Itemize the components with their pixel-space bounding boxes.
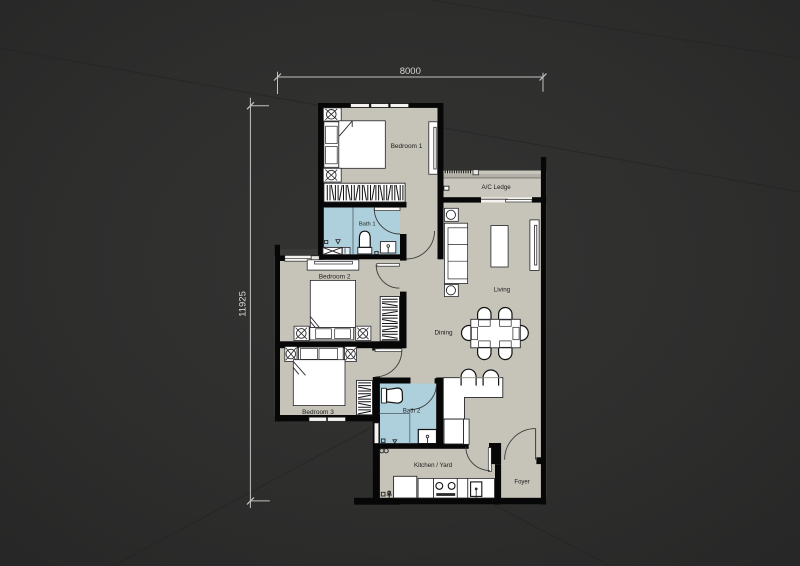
svg-text:Living: Living: [494, 287, 511, 294]
svg-text:8000: 8000: [400, 66, 421, 77]
svg-text:Bath 2: Bath 2: [403, 409, 421, 415]
svg-text:Kitchen / Yard: Kitchen / Yard: [414, 462, 453, 469]
svg-text:Dining: Dining: [434, 329, 453, 336]
svg-text:Bedroom 3: Bedroom 3: [302, 409, 334, 416]
svg-text:A/C Ledge: A/C Ledge: [481, 184, 511, 191]
svg-text:Bedroom 2: Bedroom 2: [319, 274, 351, 281]
svg-text:11925: 11925: [238, 291, 249, 317]
svg-text:Bath 1: Bath 1: [359, 222, 376, 228]
svg-text:Bedroom 1: Bedroom 1: [391, 143, 423, 150]
svg-text:Foyer: Foyer: [514, 479, 529, 485]
